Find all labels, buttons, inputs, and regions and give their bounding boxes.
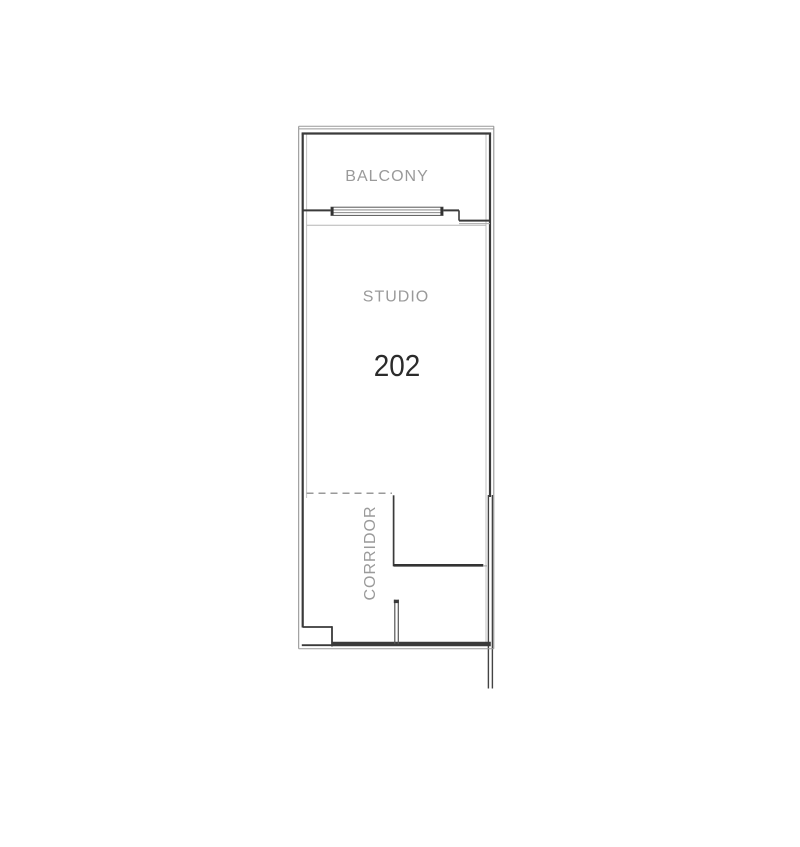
- svg-text:202: 202: [374, 349, 421, 384]
- svg-text:BALCONY: BALCONY: [345, 168, 428, 185]
- svg-text:CORRIDOR: CORRIDOR: [362, 505, 379, 600]
- svg-text:STUDIO: STUDIO: [363, 289, 429, 306]
